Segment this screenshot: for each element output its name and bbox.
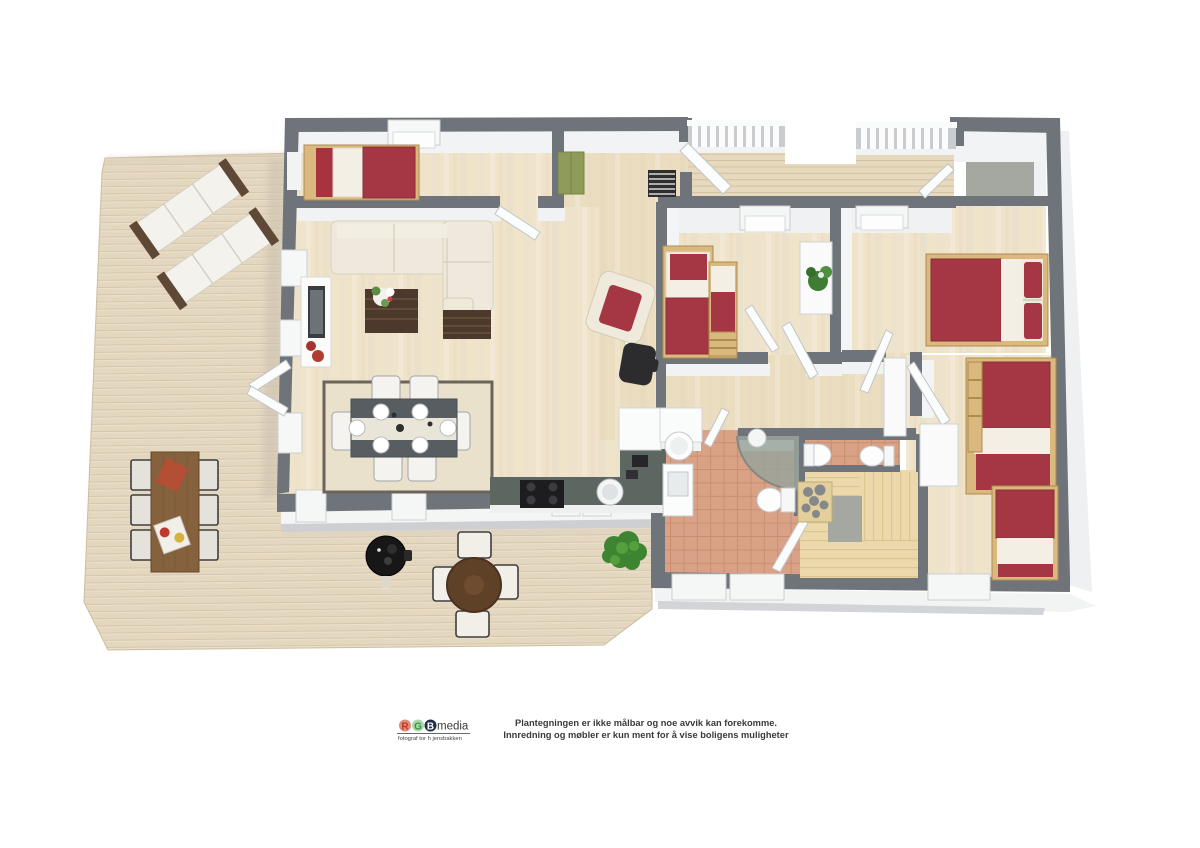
svg-text:fotograf tor h jensbakken: fotograf tor h jensbakken <box>398 736 462 742</box>
svg-text:media: media <box>437 721 469 733</box>
svg-text:R: R <box>401 722 409 733</box>
svg-text:G: G <box>414 722 422 733</box>
svg-text:B: B <box>427 722 434 733</box>
